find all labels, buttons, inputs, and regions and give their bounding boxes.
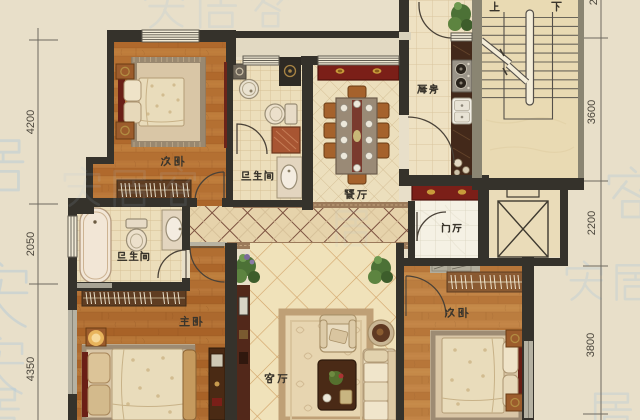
svg-text:2200: 2200	[588, 0, 600, 5]
svg-text:3800: 3800	[585, 333, 597, 357]
svg-text:2050: 2050	[25, 232, 37, 256]
svg-text:2200: 2200	[586, 211, 598, 235]
svg-text:4200: 4200	[25, 110, 37, 134]
svg-text:4350: 4350	[25, 357, 37, 381]
svg-text:3600: 3600	[586, 100, 598, 124]
